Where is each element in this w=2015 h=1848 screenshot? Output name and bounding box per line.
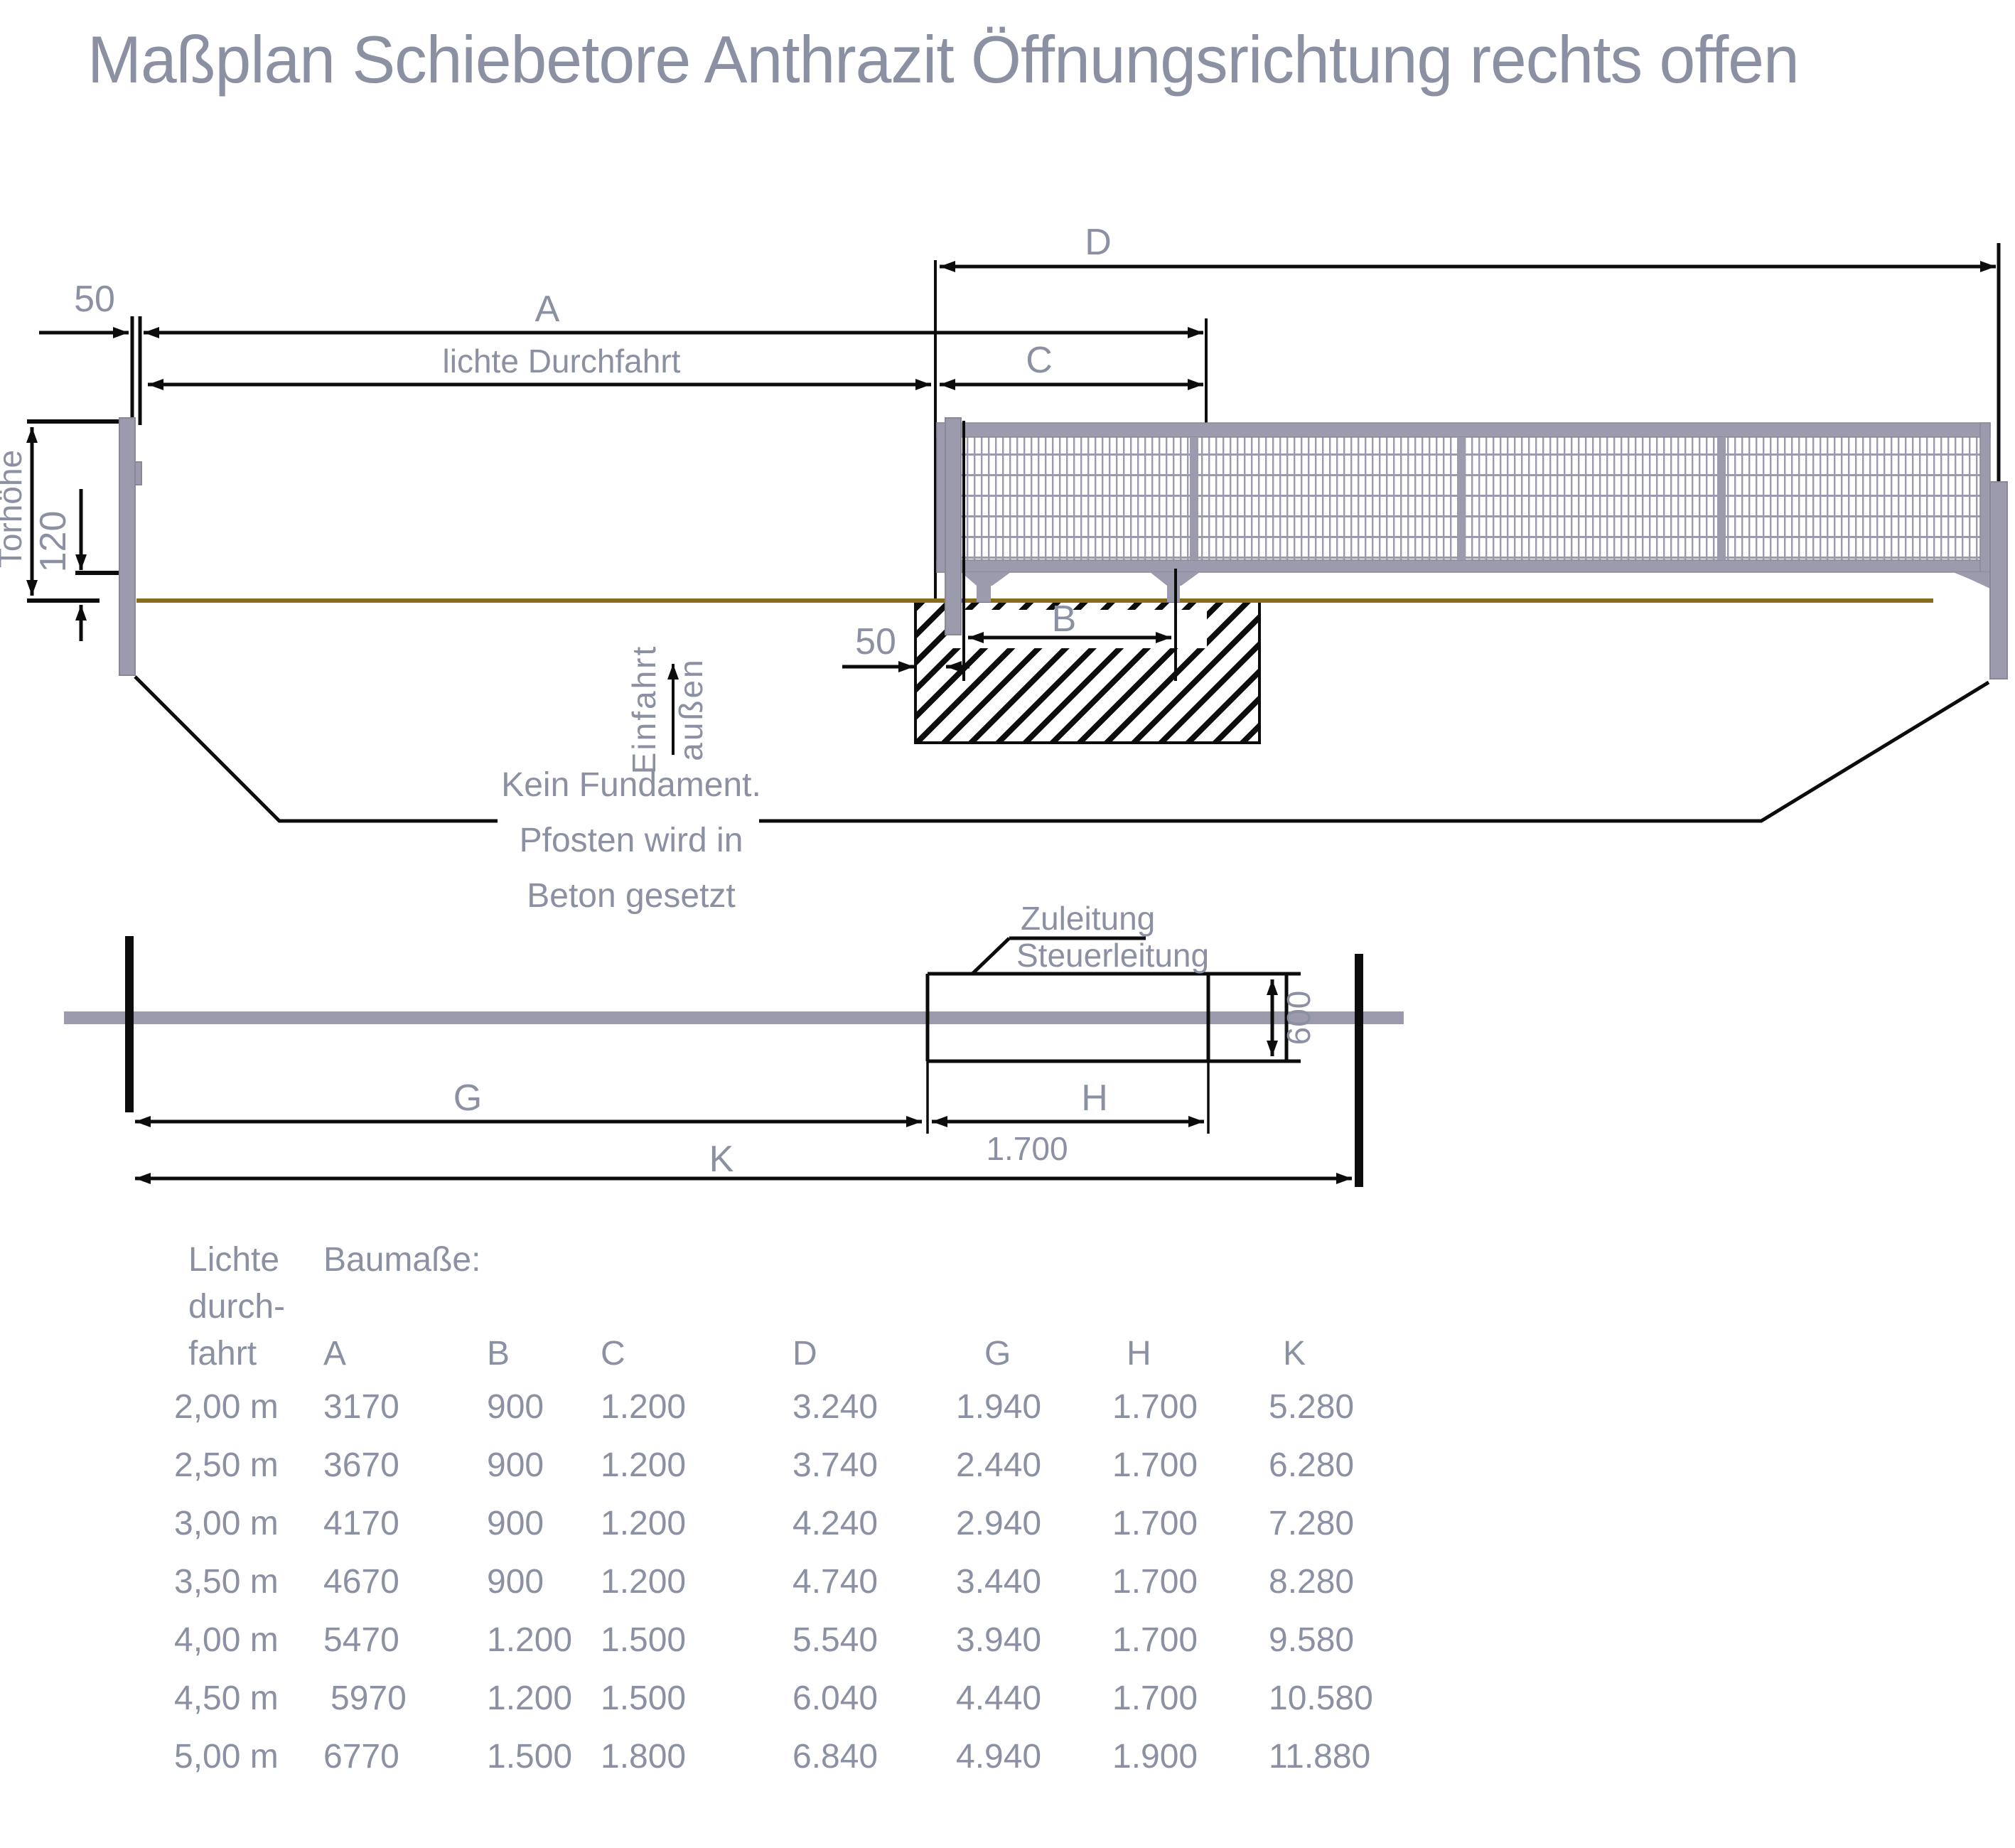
table-cell-k: 7.280	[1269, 1504, 1354, 1543]
table-cell-c: 1.200	[601, 1446, 686, 1485]
table-cell-g: 1.940	[956, 1387, 1041, 1427]
note-line-2: Pfosten wird in	[520, 822, 743, 859]
table-cell-a: 5970	[331, 1679, 407, 1718]
aussen-label: außen	[672, 657, 709, 761]
table-cell-k: 9.580	[1269, 1621, 1354, 1660]
guide-post	[945, 418, 961, 635]
table-cell-c: 1.200	[601, 1504, 686, 1543]
dim-label-b: B	[1052, 598, 1077, 640]
table-cell-k: 5.280	[1269, 1387, 1354, 1427]
table-cell-h: 1.900	[1112, 1737, 1198, 1776]
catch-post	[1990, 482, 2007, 679]
table-cell-k: 10.580	[1269, 1679, 1373, 1718]
table-cell-size: 5,00 m	[174, 1737, 279, 1776]
note-line-3: Beton gesetzt	[527, 877, 736, 915]
table-col-header-a: A	[323, 1334, 346, 1373]
table-cell-a: 6770	[323, 1737, 399, 1776]
plan-right-post	[1355, 954, 1363, 1187]
table-cell-b: 900	[487, 1446, 544, 1485]
table-col-header-c: C	[601, 1334, 625, 1373]
sliding-gate	[937, 423, 1990, 602]
table-cell-b: 900	[487, 1387, 544, 1427]
dim-label-h: H	[1081, 1078, 1108, 1119]
table-col1-header-line1: Lichte	[188, 1240, 279, 1279]
table-cell-d: 3.240	[792, 1387, 878, 1427]
table-cell-g: 2.440	[956, 1446, 1041, 1485]
note-leader-left	[135, 677, 498, 821]
table-cell-b: 900	[487, 1562, 544, 1601]
table-cell-b: 1.500	[487, 1737, 572, 1776]
gate-top-rail	[937, 423, 1990, 437]
gate-divider-3	[1717, 437, 1726, 560]
table-baumasse-header: Baumaße:	[323, 1240, 480, 1279]
table-cell-g: 3.440	[956, 1562, 1041, 1601]
table-cell-h: 1.700	[1112, 1621, 1198, 1660]
table-cell-c: 1.800	[601, 1737, 686, 1776]
dimension-table: Lichte durch- fahrt Baumaße: A B C D G H…	[0, 1208, 2015, 1848]
gate-catch-bracket	[1953, 572, 1990, 589]
table-cell-g: 4.440	[956, 1679, 1041, 1718]
elevation-view: D A 50 lichte Durchfahrt C Torhöhe 120	[0, 222, 2007, 915]
table-cell-size: 4,50 m	[174, 1679, 279, 1718]
table-col-header-k: K	[1283, 1334, 1306, 1373]
gate-roller-foot-1	[961, 572, 1011, 586]
table-cell-c: 1.200	[601, 1562, 686, 1601]
dim-label-1700: 1.700	[986, 1130, 1068, 1167]
dim-label-g: G	[453, 1078, 482, 1119]
plan-left-post	[125, 936, 134, 1112]
gate-bottom-rail	[937, 560, 1990, 572]
dim-label-600: 600	[1280, 991, 1317, 1046]
table-col-header-h: H	[1127, 1334, 1151, 1373]
gate-mesh-panel-2	[1198, 437, 1457, 560]
steuerleitung-label: Steuerleitung	[1016, 937, 1209, 974]
table-cell-k: 6.280	[1269, 1446, 1354, 1485]
table-cell-a: 4670	[323, 1562, 399, 1601]
left-post	[119, 418, 135, 675]
foundation-dim-band	[948, 610, 1207, 648]
dim-label-lichte: lichte Durchfahrt	[443, 343, 681, 380]
gate-roller-stem-2	[1167, 586, 1180, 602]
table-col-header-g: G	[984, 1334, 1011, 1373]
table-cell-d: 6.040	[792, 1679, 878, 1718]
table-cell-g: 2.940	[956, 1504, 1041, 1543]
table-cell-b: 1.200	[487, 1621, 572, 1660]
table-cell-d: 6.840	[792, 1737, 878, 1776]
dim-label-50-left: 50	[74, 279, 115, 320]
table-cell-size: 2,00 m	[174, 1387, 279, 1427]
table-cell-h: 1.700	[1112, 1446, 1198, 1485]
left-post-hinge	[135, 462, 141, 485]
dim-label-d: D	[1085, 222, 1112, 263]
dim-label-50-foundation: 50	[855, 621, 896, 662]
table-cell-size: 2,50 m	[174, 1446, 279, 1485]
table-cell-a: 5470	[323, 1621, 399, 1660]
table-cell-c: 1.500	[601, 1621, 686, 1660]
gate-mesh-panel-4	[1726, 437, 1980, 560]
dim-label-120: 120	[33, 511, 74, 573]
gate-mesh-panel-1	[947, 437, 1190, 560]
dim-label-c: C	[1026, 340, 1053, 381]
table-cell-g: 4.940	[956, 1737, 1041, 1776]
gate-mesh-panel-3	[1466, 437, 1717, 560]
gate-divider-2	[1457, 437, 1466, 560]
gate-roller-stem-1	[977, 586, 991, 602]
table-cell-c: 1.200	[601, 1387, 686, 1427]
table-cell-d: 4.740	[792, 1562, 878, 1601]
table-cell-d: 4.240	[792, 1504, 878, 1543]
dim-label-a: A	[535, 289, 560, 330]
plan-gate-line	[64, 1011, 1404, 1024]
table-cell-g: 3.940	[956, 1621, 1041, 1660]
table-cell-size: 3,00 m	[174, 1504, 279, 1543]
table-cell-size: 3,50 m	[174, 1562, 279, 1601]
gate-divider-1	[1190, 437, 1198, 560]
table-cell-b: 1.200	[487, 1679, 572, 1718]
zuleitung-leader	[972, 938, 1009, 974]
table-cell-h: 1.700	[1112, 1562, 1198, 1601]
plan-view: 600 Zuleitung Steuerleitung G H 1.700 K	[64, 900, 1404, 1187]
zuleitung-label: Zuleitung	[1021, 900, 1155, 937]
table-cell-h: 1.700	[1112, 1387, 1198, 1427]
table-cell-d: 5.540	[792, 1621, 878, 1660]
dim-label-torhoehe: Torhöhe	[0, 450, 28, 568]
table-cell-k: 11.880	[1269, 1737, 1370, 1776]
table-cell-a: 4170	[323, 1504, 399, 1543]
table-col-header-d: D	[792, 1334, 817, 1373]
note-line-1: Kein Fundament.	[501, 766, 761, 804]
dim-label-k: K	[709, 1139, 734, 1180]
gate-right-bar	[1980, 423, 1990, 572]
einfahrt-label: Einfahrt	[625, 645, 662, 775]
table-cell-size: 4,00 m	[174, 1621, 279, 1660]
table-cell-h: 1.700	[1112, 1504, 1198, 1543]
table-cell-b: 900	[487, 1504, 544, 1543]
table-cell-d: 3.740	[792, 1446, 878, 1485]
table-cell-a: 3670	[323, 1446, 399, 1485]
table-cell-k: 8.280	[1269, 1562, 1354, 1601]
table-cell-c: 1.500	[601, 1679, 686, 1718]
table-cell-a: 3170	[323, 1387, 399, 1427]
table-col1-header-line3: fahrt	[188, 1334, 257, 1373]
table-cell-h: 1.700	[1112, 1679, 1198, 1718]
table-col1-header-line2: durch-	[188, 1287, 285, 1326]
table-col-header-b: B	[487, 1334, 510, 1373]
